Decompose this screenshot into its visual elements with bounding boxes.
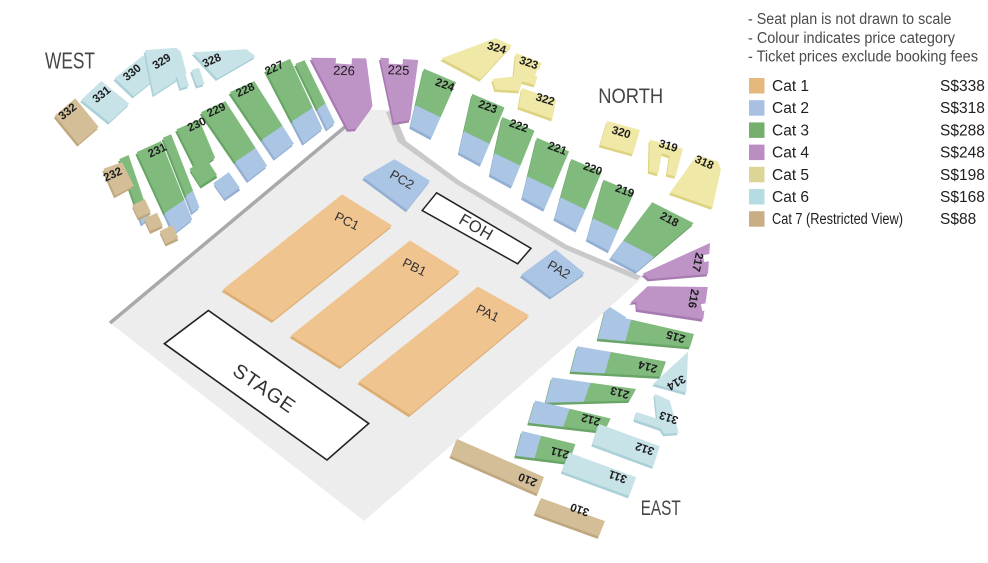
svg-text:226: 226 <box>333 63 355 79</box>
svg-text:Cat 4: Cat 4 <box>772 145 809 162</box>
svg-text:S$88: S$88 <box>940 211 976 228</box>
svg-text:225: 225 <box>387 62 409 78</box>
svg-text:Cat 5: Cat 5 <box>772 167 809 184</box>
svg-text:S$248: S$248 <box>940 145 985 162</box>
svg-text:S$198: S$198 <box>940 167 985 184</box>
svg-text:NORTH: NORTH <box>598 85 663 108</box>
svg-text:Cat 2: Cat 2 <box>772 100 809 117</box>
svg-text:S$318: S$318 <box>940 100 985 117</box>
svg-text:Cat 1: Cat 1 <box>772 78 809 95</box>
svg-text:WEST: WEST <box>45 48 95 74</box>
svg-text:Cat 3: Cat 3 <box>772 122 809 139</box>
svg-text:EAST: EAST <box>641 497 681 520</box>
svg-text:S$168: S$168 <box>940 189 985 206</box>
svg-text:- Ticket prices exclude bookin: - Ticket prices exclude booking fees <box>748 49 978 66</box>
svg-text:- Colour indicates price categ: - Colour indicates price category <box>748 30 955 47</box>
svg-text:- Seat plan is not drawn to sc: - Seat plan is not drawn to scale <box>748 11 952 28</box>
svg-text:Cat 7 (Restricted View): Cat 7 (Restricted View) <box>772 211 903 228</box>
svg-text:S$338: S$338 <box>940 78 985 95</box>
svg-text:S$288: S$288 <box>940 122 985 139</box>
svg-text:Cat 6: Cat 6 <box>772 189 809 206</box>
